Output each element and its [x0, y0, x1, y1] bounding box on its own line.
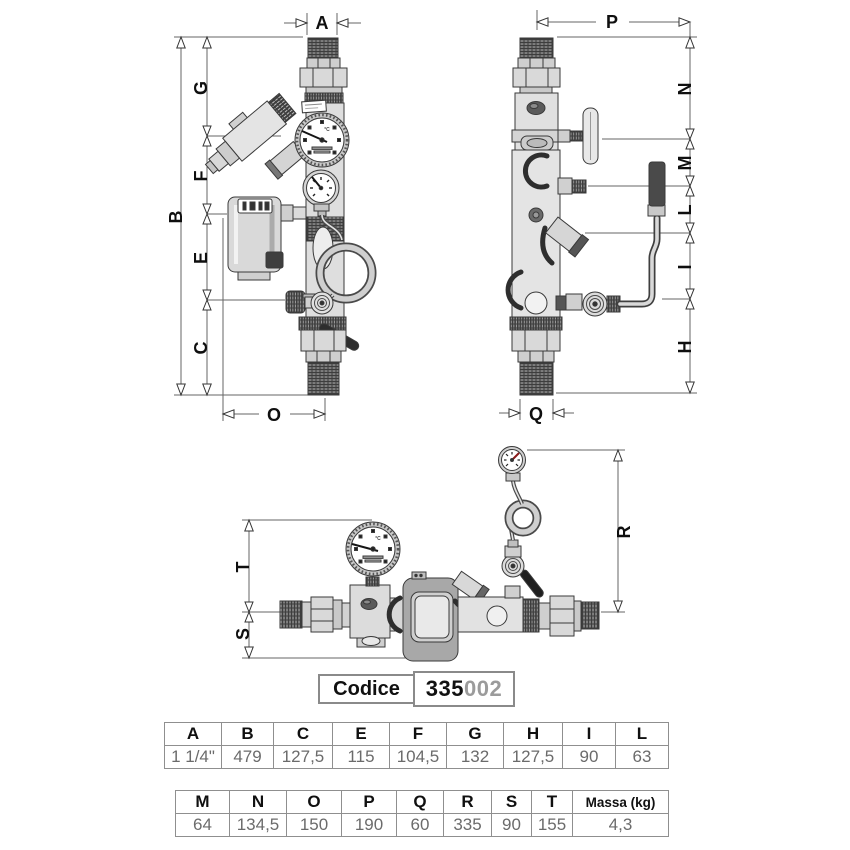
value-cell: 134,5 [230, 814, 287, 837]
header-cell: G [447, 723, 504, 746]
check-valve-knob [286, 291, 305, 313]
header-cell: A [165, 723, 222, 746]
value-cell: 190 [342, 814, 397, 837]
threaded-pipe-top-side [520, 38, 553, 58]
dimension-q: Q [499, 399, 574, 424]
header-cell: B [222, 723, 274, 746]
dim-label-l: L [675, 205, 695, 216]
value-cell: 63 [616, 746, 669, 769]
gauge-block [350, 577, 390, 647]
pump-icon [228, 197, 306, 280]
header-cell: R [444, 791, 492, 814]
dimension-r: R [527, 450, 634, 612]
value-cell: 127,5 [274, 746, 333, 769]
table-row: 64 134,5 150 190 60 335 90 155 4,3 [176, 814, 669, 837]
value-cell: 115 [333, 746, 390, 769]
threaded-pipe-top [308, 38, 338, 58]
header-cell: L [616, 723, 669, 746]
dim-label-i: I [675, 264, 695, 269]
header-cell: F [390, 723, 447, 746]
union-nut-left-top-view [311, 597, 333, 632]
codice-label: Codice [333, 678, 400, 701]
header-cell: S [492, 791, 532, 814]
header-cell: Q [397, 791, 444, 814]
dim-label-n: N [675, 83, 695, 96]
side-view: P N M L I H Q [499, 10, 697, 424]
dim-label-g: G [191, 81, 211, 95]
value-cell: 479 [222, 746, 274, 769]
air-vent-icon [195, 87, 305, 181]
table-row: A B C E F G H I L [165, 723, 669, 746]
union-nut-right-top-view [550, 596, 574, 636]
dim-label-b: B [166, 211, 186, 224]
dim-label-a: A [316, 13, 329, 33]
threaded-pipe-bottom-side [520, 362, 553, 395]
capillary-coil-top-view-icon [509, 481, 537, 540]
dimension-nmlih: N M L I H [556, 22, 697, 393]
product-code: Codice 335002 [318, 671, 515, 707]
dimension-p: P [537, 10, 690, 32]
value-cell: 104,5 [390, 746, 447, 769]
codice-number-bold: 335 [426, 676, 464, 702]
front-assembly: °C [195, 38, 372, 395]
union-nut-bottom [301, 330, 346, 351]
pump-top-view-icon [403, 572, 458, 661]
dim-label-s: S [233, 628, 253, 640]
header-cell-massa: Massa (kg) [573, 791, 669, 814]
pump-knob [266, 252, 283, 268]
header-cell: H [504, 723, 563, 746]
gauge-unit-label-2: °C [375, 536, 381, 542]
header-cell: P [342, 791, 397, 814]
front-view: A B G F E C O [166, 13, 372, 425]
codice-value-box: 335002 [413, 671, 515, 707]
header-cell: E [333, 723, 390, 746]
top-view: T S R [233, 447, 634, 662]
threaded-pipe-right [581, 602, 599, 629]
dim-label-f: F [191, 171, 211, 182]
value-cell: 150 [287, 814, 342, 837]
union-nut-top [300, 68, 347, 87]
technical-drawing-page: A B G F E C O [0, 0, 850, 850]
dim-label-o: O [267, 405, 281, 425]
value-cell: 60 [397, 814, 444, 837]
dim-label-m: M [675, 156, 695, 171]
drain-valve-top-view-icon [502, 540, 545, 599]
side-assembly [508, 38, 665, 395]
header-cell: N [230, 791, 287, 814]
dim-label-q: Q [529, 404, 543, 424]
dimensions-table-secondary: M N O P Q R S T Massa (kg) 64 134,5 150 … [175, 790, 669, 837]
sensor-pocket-icon [648, 162, 665, 216]
value-cell: 64 [176, 814, 230, 837]
value-cell: 90 [492, 814, 532, 837]
value-cell: 90 [563, 746, 616, 769]
drain-valve-icon [556, 292, 620, 316]
dim-label-t: T [233, 562, 253, 573]
table-row: M N O P Q R S T Massa (kg) [176, 791, 669, 814]
dim-label-p: P [606, 12, 618, 32]
fill-valve-icon [311, 292, 333, 314]
thermometer-gauge-icon: °C [295, 113, 349, 167]
value-cell: 4,3 [573, 814, 669, 837]
thermometer-gauge-top-icon: °C [346, 522, 400, 576]
header-cell: M [176, 791, 230, 814]
union-nut-top-side [513, 68, 560, 87]
value-cell: 1 1/4" [165, 746, 222, 769]
value-cell: 335 [444, 814, 492, 837]
gauge-edge-icon [558, 108, 598, 164]
dimensions-table-primary: A B C E F G H I L 1 1/4" 479 127,5 115 1… [164, 722, 669, 769]
threaded-pipe-left [280, 601, 302, 628]
dim-label-h: H [675, 341, 695, 354]
table-row: 1 1/4" 479 127,5 115 104,5 132 127,5 90 … [165, 746, 669, 769]
dim-label-r: R [614, 526, 634, 539]
union-nut-bottom-side [512, 330, 560, 351]
header-cell: I [563, 723, 616, 746]
value-cell: 127,5 [504, 746, 563, 769]
header-cell: O [287, 791, 342, 814]
codice-number-light: 002 [464, 676, 502, 702]
threaded-pipe-bottom [308, 362, 339, 395]
dim-label-c: C [191, 342, 211, 355]
header-cell: C [274, 723, 333, 746]
codice-label-box: Codice [318, 674, 415, 704]
probe-tube-icon [620, 218, 657, 304]
value-cell: 132 [447, 746, 504, 769]
gauge-unit-label: °C [324, 127, 330, 133]
small-gauge-top-view-icon [499, 447, 526, 482]
dimension-a: A [284, 13, 361, 35]
dim-label-e: E [191, 252, 211, 264]
technical-drawing-svg: A B G F E C O [0, 0, 850, 670]
value-cell: 155 [532, 814, 573, 837]
header-cell: T [532, 791, 573, 814]
top-assembly: °C [280, 447, 599, 662]
